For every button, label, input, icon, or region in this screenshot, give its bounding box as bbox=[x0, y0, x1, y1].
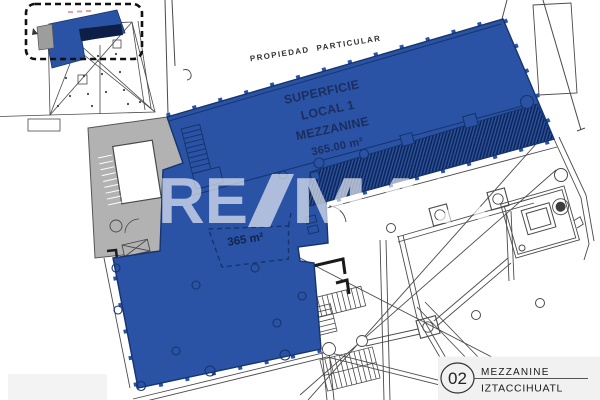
svg-text:IZTACCIHUATL: IZTACCIHUATL bbox=[481, 383, 563, 395]
svg-text:02: 02 bbox=[448, 369, 467, 388]
svg-text:RE: RE bbox=[158, 164, 248, 237]
svg-text:MEZZANINE: MEZZANINE bbox=[481, 367, 550, 378]
svg-text:MAX: MAX bbox=[291, 164, 496, 237]
